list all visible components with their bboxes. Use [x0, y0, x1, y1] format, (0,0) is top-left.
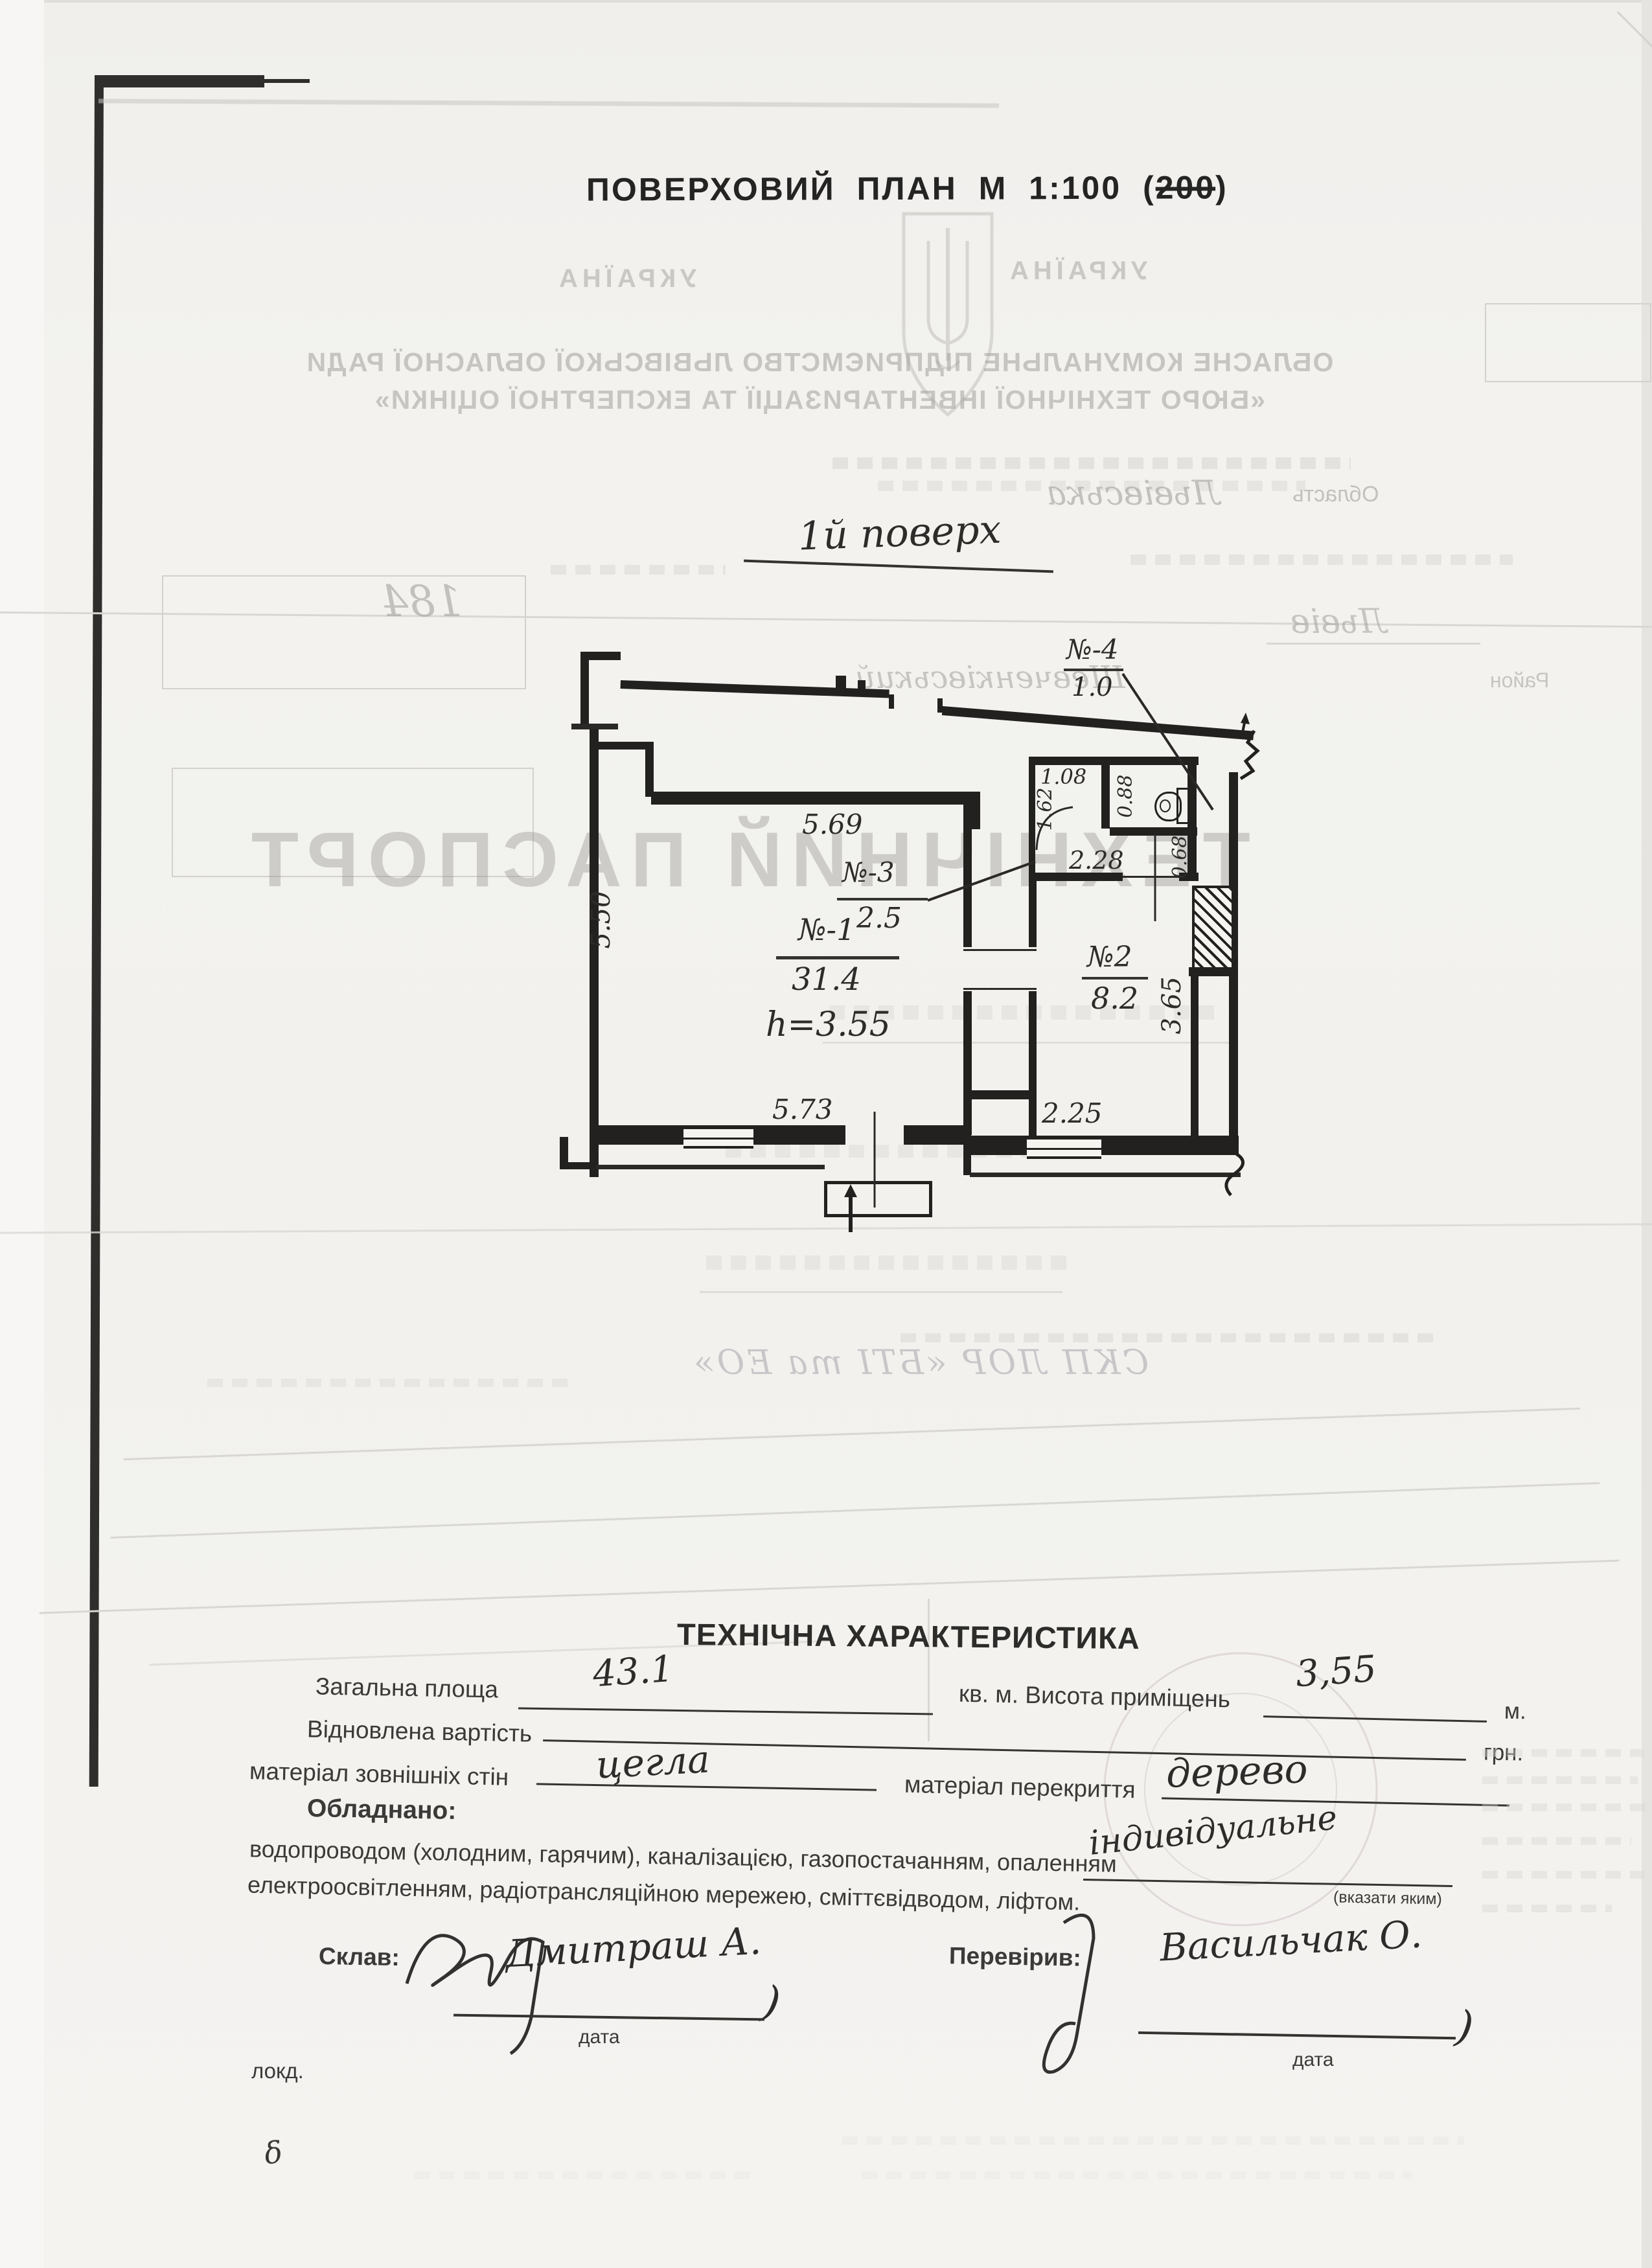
page-left-margin	[0, 0, 44, 2268]
entrance-porch	[824, 1181, 932, 1217]
total-area-label: Загальна площа	[315, 1673, 499, 1704]
window	[683, 1127, 753, 1149]
bleed-smallprint-strip	[901, 1333, 1438, 1342]
scan-border-corner-h	[95, 75, 264, 87]
bleed-column-strip	[1482, 1905, 1612, 1912]
bleed-org-line1: ОБЛАСНЕ КОМУНАЛЬНЕ ПІДПРИЄМСТВО ЛЬВІВСЬК…	[194, 347, 1445, 378]
room3-number: №-3	[842, 856, 895, 888]
bleed-bottom-strip	[862, 2171, 1412, 2179]
equipped-hint: (вказати яким)	[1333, 1888, 1442, 1909]
date-label-right: дата	[1292, 2049, 1334, 2071]
plan-below-hatch-wall	[1189, 967, 1238, 976]
pen-mark: δ	[262, 2134, 284, 2171]
composed-label: Склав:	[319, 1943, 400, 1971]
bleed-hw-underline	[700, 1291, 1062, 1293]
room4-number: №-4	[1066, 634, 1119, 665]
scan-shadow-line	[98, 98, 999, 108]
plan-hatched-wall-section	[1192, 886, 1234, 972]
entrance-opening	[845, 1125, 904, 1145]
floor-label-underline	[744, 560, 1053, 573]
room2-underline	[1082, 977, 1148, 979]
plan-bottom-left-step-h	[560, 1162, 596, 1169]
dim-room2-right: 3.65	[1157, 954, 1183, 1057]
lokd-note: локд.	[251, 2059, 304, 2083]
date-underline-left	[453, 2014, 764, 2021]
bleed-box-top-right	[1485, 303, 1651, 382]
scale-paren-open: (	[1143, 170, 1156, 206]
bleed-number-value: 184	[381, 577, 463, 626]
plan-wing-left-wall	[1029, 1099, 1037, 1137]
bleed-column-strip	[1482, 1837, 1631, 1845]
equipped-label: Обладнано:	[307, 1794, 457, 1826]
bleed-ruled-line	[40, 1560, 1620, 1614]
ceiling-material-value: дерево	[1165, 1747, 1309, 1797]
bleed-district-label: Район	[1490, 669, 1549, 693]
restored-value-label: Відновлена вартість	[307, 1715, 533, 1747]
bleed-stamp-line: СКП ЛОР «БТІ та ЕО»	[466, 1344, 1373, 1382]
bleed-city-value: Львів	[1291, 602, 1387, 641]
scan-border-line-vertical	[89, 75, 104, 1787]
dim-left: 5.50	[586, 868, 612, 972]
scanned-technical-passport-page: ПОВЕРХОВИЙ ПЛАН М 1:100 (200) УКРАЇНА УК…	[0, 0, 1652, 2268]
plan-outer-top-wall-left	[621, 680, 889, 698]
room3-underline	[837, 898, 928, 900]
plan-bottom-outer-line	[569, 1165, 825, 1169]
equipped-line2: електроосвітленням, радіотрансляційною м…	[247, 1872, 1081, 1916]
plan-wing-left-wall	[1029, 881, 1037, 947]
plan-building-corner-cap	[580, 652, 621, 660]
page-title: ПОВЕРХОВИЙ ПЛАН М 1:100 (200)	[586, 168, 1228, 208]
walls-material-label: матеріал зовнішніх стін	[249, 1758, 509, 1791]
bleed-oblast-label: Область	[1292, 482, 1379, 507]
scale-struck-value: 200	[1156, 169, 1216, 205]
plan-wall-notch	[836, 676, 846, 691]
bleed-column-strip	[1482, 1776, 1638, 1784]
plan-main-right-wall	[963, 798, 972, 947]
height-value: 3,55	[1294, 1648, 1378, 1696]
crease-line	[0, 1223, 1652, 1233]
equipped-value: індивідуальне	[1087, 1798, 1339, 1863]
dim-room2-bottom: 2.25	[1042, 1097, 1103, 1129]
room3-area: 2.5	[856, 902, 902, 935]
bleed-column-strip	[1482, 1871, 1644, 1879]
total-area-value: 43.1	[591, 1648, 675, 1696]
date-underline-right	[1138, 2032, 1456, 2040]
composed-name: Дмитраш А.	[504, 1919, 762, 1976]
plan-room2-right-wall	[1191, 976, 1199, 1138]
page-title-text: ПОВЕРХОВИЙ ПЛАН М 1:100	[586, 170, 1121, 208]
bleed-column-strip	[1482, 1749, 1644, 1757]
ceiling-material-label: матеріал перекриття	[904, 1771, 1136, 1804]
bleed-hw-strip	[706, 1255, 1075, 1270]
bleed-number-box	[162, 575, 526, 689]
bleed-country-right: УКРАЇНА	[1005, 257, 1147, 286]
plan-door-line	[963, 949, 1037, 951]
plan-wall-crossbar	[963, 1090, 1037, 1099]
bleed-country-left: УКРАЇНА	[555, 264, 696, 293]
walls-material-underline	[536, 1783, 877, 1791]
dim-corridor-left: 1.62	[1034, 767, 1056, 851]
total-area-underline	[518, 1708, 933, 1715]
page-top-edge	[0, 0, 1652, 3]
bleed-bottom-strip	[415, 2171, 751, 2179]
bleed-city-underline	[1267, 643, 1480, 645]
room2-number: №2	[1087, 941, 1132, 974]
closing-paren: )	[1453, 2001, 1476, 2053]
walls-material-value: цегла	[595, 1737, 711, 1787]
plan-main-top-wall	[651, 792, 980, 805]
room2-area: 8.2	[1091, 981, 1138, 1016]
wall-end-arrowhead	[1241, 713, 1250, 724]
room1-underline	[776, 956, 899, 959]
dim-wc-below: 0.68	[1169, 815, 1191, 899]
bleed-oblast-value: Львівська	[1046, 474, 1220, 513]
plan-main-right-wall	[963, 991, 972, 1092]
toilet-icon-inner	[1160, 799, 1171, 812]
bleed-ruled-line	[111, 1482, 1600, 1539]
dim-bottom: 5.73	[772, 1094, 833, 1125]
bleed-city-label-strip	[1130, 555, 1513, 565]
plan-bottom-wall-wing	[970, 1136, 1239, 1155]
equipped-underline	[1083, 1879, 1452, 1887]
plan-bottom-wall-main	[590, 1125, 965, 1145]
room1-area: 31.4	[792, 961, 861, 998]
window	[1027, 1137, 1101, 1159]
dim-wc-side: 0.88	[1114, 754, 1136, 838]
height-unit: м.	[1504, 1699, 1526, 1725]
bleed-org-line2: «БЮРО ТЕХНІЧНОЇ ІНВЕНТАРИЗАЦІЇ ТА ЕКСПЕР…	[311, 385, 1328, 415]
plan-building-corner-vertical	[580, 652, 589, 724]
checked-signature	[1044, 1915, 1094, 2072]
plan-door-line	[963, 988, 1037, 990]
plan-main-top-wall-end	[972, 792, 980, 829]
room4-underline	[1064, 669, 1123, 671]
checked-name: Васильчак О.	[1158, 1912, 1423, 1969]
bleed-smallprint-strip	[207, 1379, 570, 1387]
bleed-text-strip	[832, 457, 1351, 469]
scan-border-corner-tick	[262, 79, 310, 83]
checked-label: Перевірив:	[949, 1942, 1081, 1972]
plan-outer-top-wall-right	[942, 706, 1254, 740]
plan-wall-notch	[858, 680, 866, 692]
bleed-bottom-strip	[842, 2136, 1464, 2145]
floor-label: 1й поверх	[797, 507, 1002, 560]
dim-corridor: 2.28	[1069, 846, 1124, 875]
height-label: кв. м. Висота приміщень	[959, 1680, 1231, 1713]
plan-step-vertical	[645, 742, 654, 797]
room4-area: 1.0	[1072, 672, 1113, 702]
scale-paren-close: )	[1215, 169, 1228, 205]
plan-wc-left-wall	[1101, 765, 1110, 829]
plan-bottom-outer-line-wing	[970, 1173, 1241, 1177]
date-label-left: дата	[579, 2026, 620, 2048]
equipped-line1: водопроводом (холодним, гарячим), каналі…	[249, 1835, 1117, 1877]
dim-top: 5.69	[802, 808, 863, 840]
bleed-ruled-line	[124, 1408, 1581, 1461]
plan-wing-left-wall	[1029, 991, 1037, 1092]
height-underline	[1263, 1715, 1487, 1723]
room1-number: №-1	[798, 912, 855, 947]
plan-opening-jamb	[889, 694, 894, 709]
tech-heading: ТЕХНІЧНА ХАРАКТЕРИСТИКА	[677, 1616, 1140, 1656]
bleed-label-strip	[551, 565, 726, 575]
height-note: h=3.55	[766, 1005, 891, 1044]
bleed-column-strip	[1482, 1804, 1647, 1811]
